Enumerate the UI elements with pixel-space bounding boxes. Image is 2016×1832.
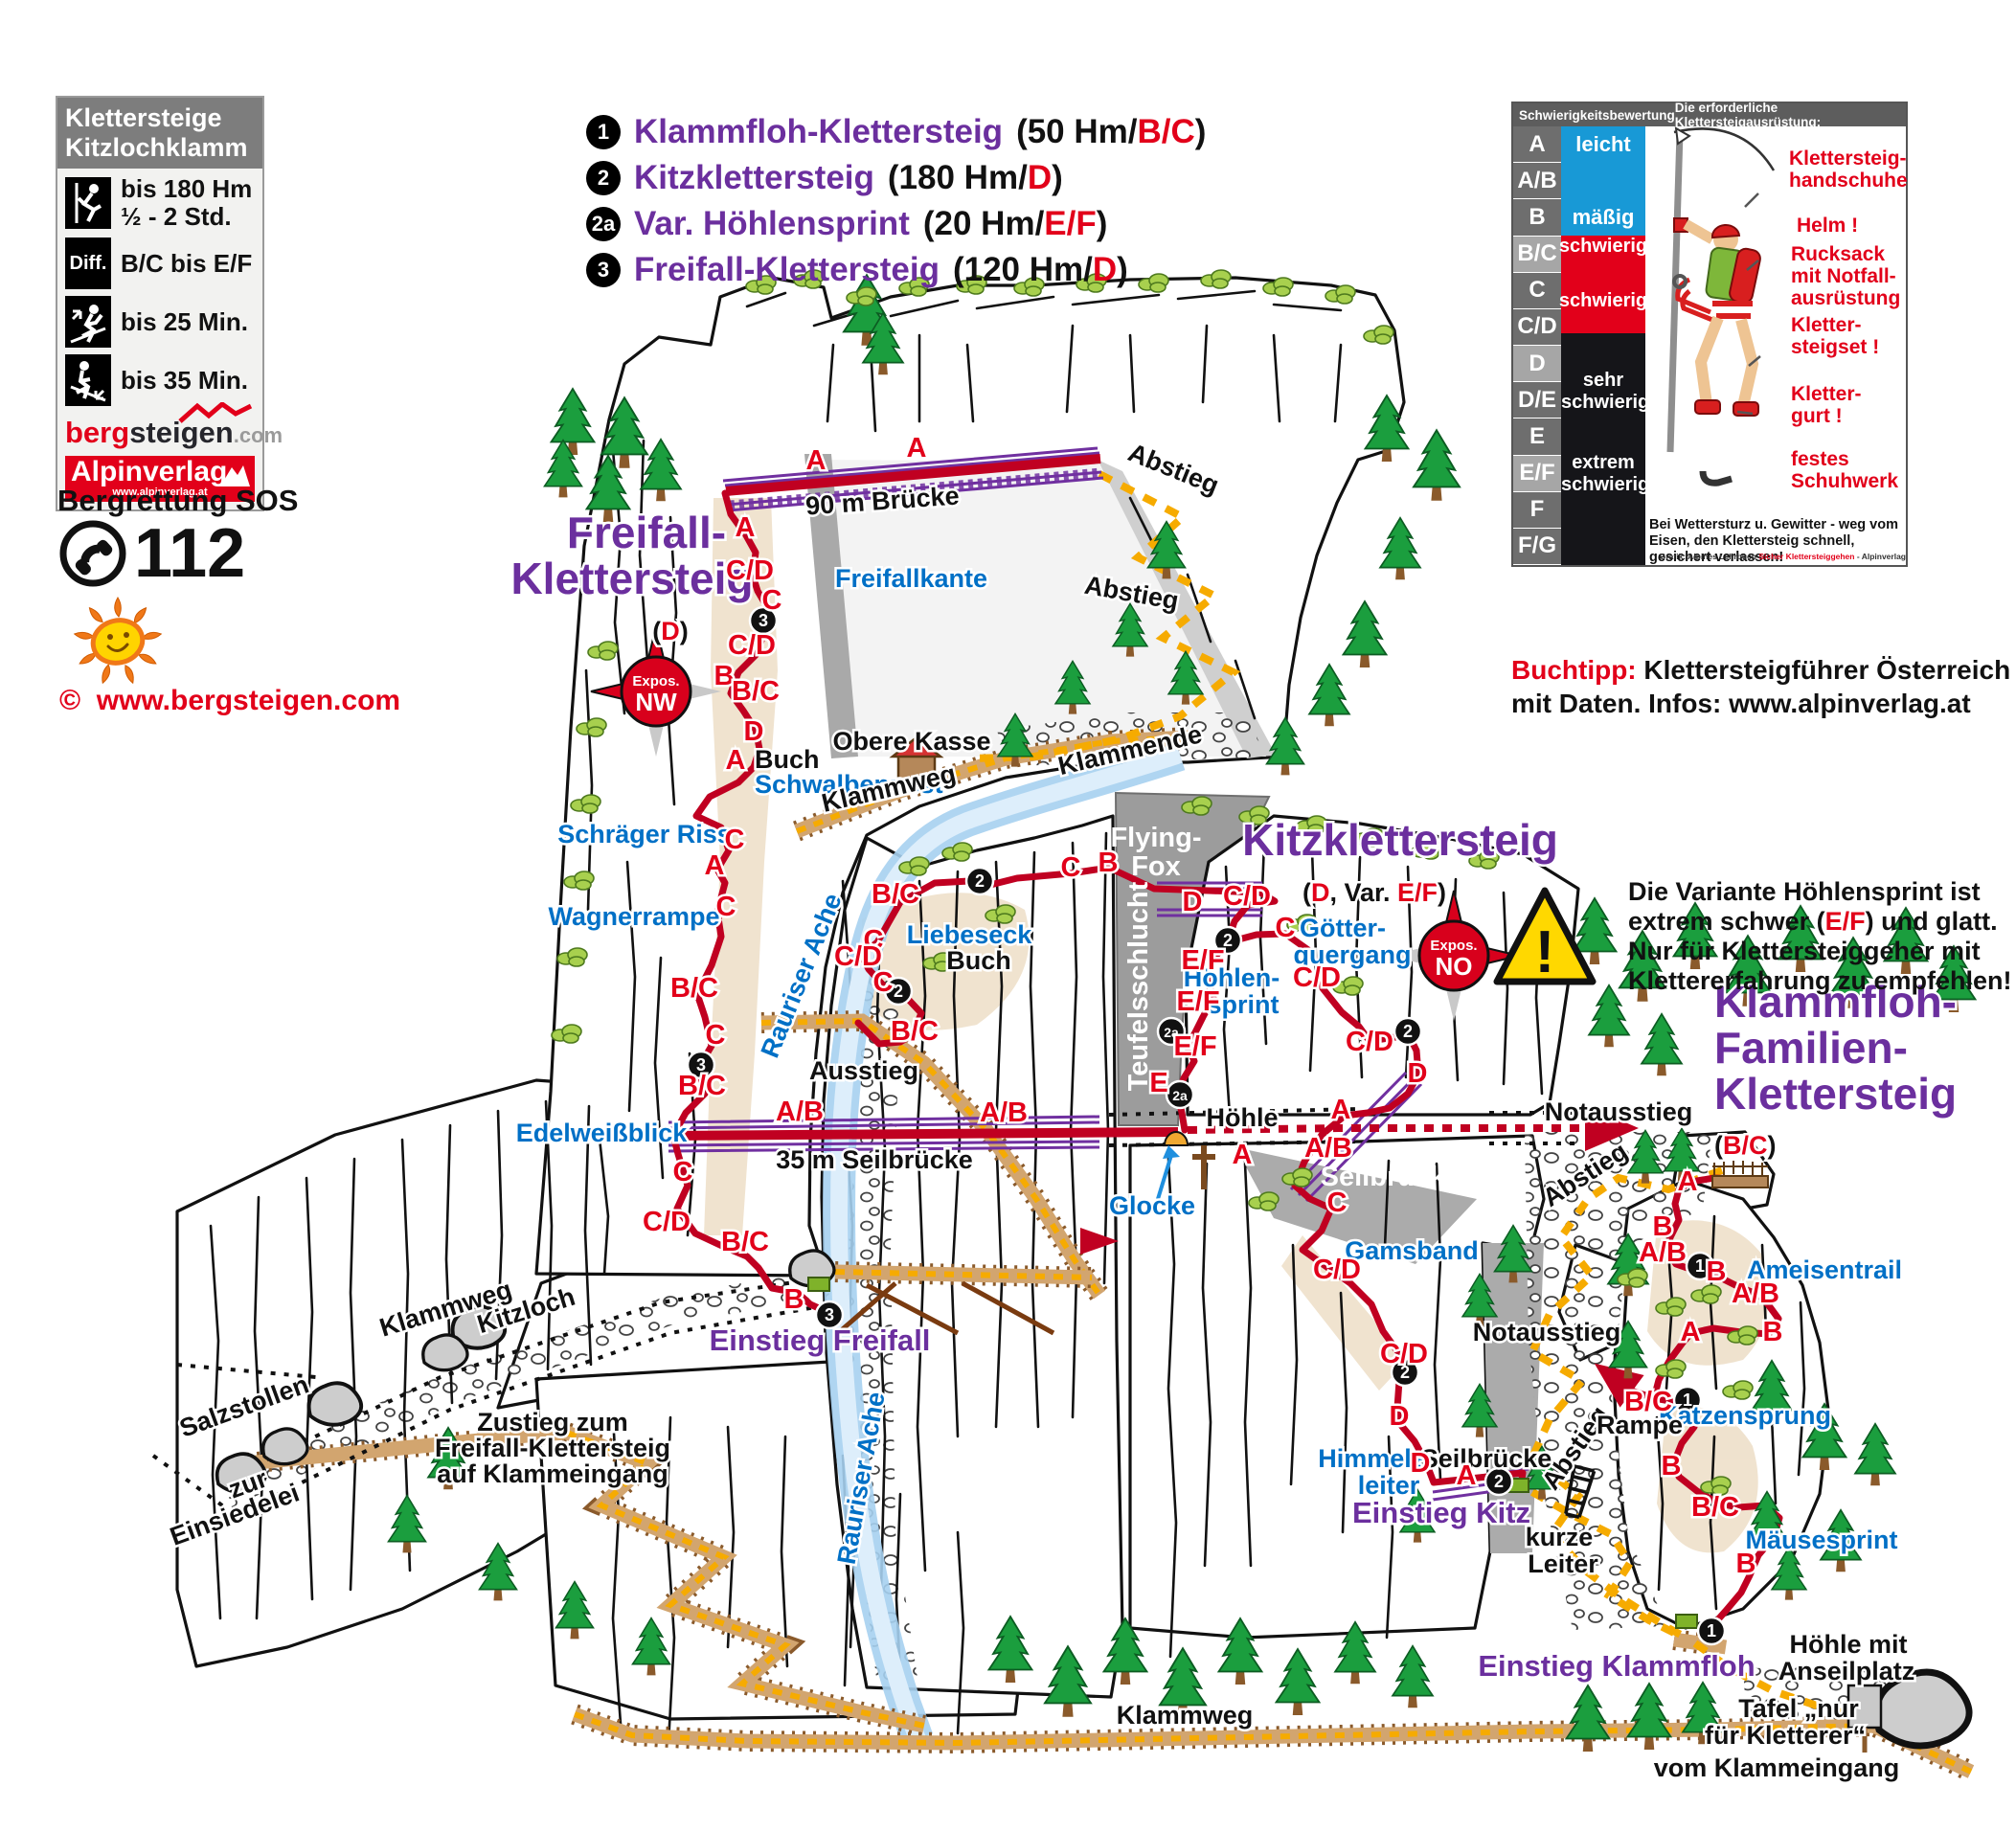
map-label: Teufelsschlucht [1123, 881, 1154, 1091]
map-label: (D) [652, 617, 689, 645]
sos-title: Bergrettung SOS [57, 484, 298, 518]
map-label: E/F [1181, 945, 1224, 976]
buchtipp-note: Buchtipp: Klettersteigführer Österreich … [1511, 653, 2010, 720]
map-label: Freifall-Klettersteig [435, 1434, 670, 1462]
svg-text:NW: NW [635, 688, 677, 716]
map-label: Einstieg Freifall [710, 1323, 931, 1357]
map-label: Wagnerrampe [548, 902, 719, 931]
map-label: A/B [1732, 1278, 1779, 1309]
map-label: C [1061, 852, 1081, 883]
map-label: D [1183, 887, 1203, 917]
legend-row-descent: bis 35 Min. [57, 348, 262, 406]
map-label: C [762, 585, 782, 616]
map-label: Freifall- [567, 508, 726, 557]
hike-up-icon [65, 296, 111, 348]
map-label: (D, Var. E/F) [1302, 878, 1446, 907]
map-label: A/B [980, 1097, 1028, 1128]
route-number-badge: 2 [586, 161, 621, 195]
map-label: A [726, 745, 746, 776]
map-label: A [736, 512, 756, 543]
map-label: Notausstieg [1473, 1318, 1621, 1346]
legend-panel: KlettersteigeKitzlochklamm bis 180 Hm½ -… [56, 96, 264, 511]
map-label: Mäusesprint [1745, 1526, 1897, 1554]
map-label: A [1233, 1140, 1253, 1170]
map-label: E/F [1176, 986, 1219, 1017]
map-label: B/C [1691, 1492, 1739, 1523]
map-label: Höhle [1206, 1103, 1278, 1132]
map-label: C [673, 1157, 693, 1187]
info-board [1676, 1615, 1697, 1628]
svg-text:2: 2 [894, 982, 903, 1001]
map-label: Leiter [1528, 1549, 1598, 1578]
map-label: B [784, 1284, 804, 1315]
map-label: Kitzklettersteig [1242, 815, 1558, 865]
map-label: auf Klammeingang [437, 1459, 668, 1488]
map-label: C/D [1293, 962, 1341, 993]
map-label: A [806, 445, 827, 476]
route-list-item: 2 Kitzklettersteig (180 Hm/D) [586, 159, 1206, 197]
graphic-credit: Grafik: Alpines Lehrbuch Sicher Kletters… [1649, 552, 1906, 561]
map-label: Liebeseck [907, 920, 1033, 949]
map-label: Schräger Riss [557, 820, 732, 848]
map-label: C [706, 1020, 726, 1051]
sos-block: Bergrettung SOS 112 [57, 484, 298, 589]
map-label: vom Klammeingang [1654, 1753, 1900, 1782]
map-label: C/D [726, 555, 774, 586]
map-label: Tafel „nur [1738, 1694, 1859, 1723]
map-label: C/D [1223, 881, 1271, 912]
map-label: B/C [732, 676, 780, 707]
route-number-badge: 1 [586, 115, 621, 149]
copyright-line: © www.bergsteigen.com [59, 685, 400, 717]
route-number-marker: 2a [1167, 1081, 1193, 1108]
map-label: für Kletterer“ [1705, 1721, 1866, 1750]
map-label: C/D [1346, 1027, 1393, 1057]
map-label: A [1681, 1317, 1701, 1347]
map-label: Fox [1131, 851, 1181, 882]
map-label: Glocke [1109, 1191, 1195, 1220]
equipment-label: Rucksack mit Notfall- ausrüstung [1791, 243, 1900, 309]
map-label: B/C [678, 1071, 726, 1101]
map-label: B [1763, 1317, 1783, 1347]
svg-text:1: 1 [1695, 1256, 1705, 1276]
svg-text:2: 2 [1494, 1472, 1504, 1491]
emergency-number: 112 [134, 520, 245, 587]
route-number-marker: 2 [1394, 1018, 1421, 1045]
equipment-area: Klettersteig- handschuhe Helm ! Rucksack… [1645, 126, 1910, 565]
route-list: 1 Klammfloh-Klettersteig (50 Hm/B/C) 2 K… [586, 113, 1206, 289]
map-label: A/B [776, 1097, 824, 1127]
map-label: B/C [721, 1227, 769, 1257]
map-label: (B/C) [1714, 1131, 1777, 1160]
map-label: C [873, 967, 894, 998]
route-list-item: 1 Klammfloh-Klettersteig (50 Hm/B/C) [586, 113, 1206, 151]
map-label: Anseilplatz [1778, 1657, 1915, 1685]
map-label: A [1331, 1095, 1351, 1125]
map-label: Klammweg [1117, 1701, 1254, 1730]
map-label: B [1099, 848, 1119, 878]
map-label: D [1390, 1401, 1410, 1432]
map-label: Seilbrücke [1421, 1444, 1552, 1473]
map-label: Klettersteig [510, 554, 753, 603]
route-number-badge: 2a [586, 207, 621, 241]
map-label: A [907, 433, 927, 464]
map-label: B [1662, 1451, 1682, 1481]
map-label: C [1276, 913, 1296, 943]
map-label: Buch [755, 745, 820, 774]
map-label: C/D [1313, 1255, 1361, 1285]
svg-text:1: 1 [1707, 1621, 1716, 1640]
map-label: kurze [1526, 1523, 1594, 1551]
map-label: D [1411, 1448, 1431, 1479]
map-label: E [1149, 1068, 1167, 1098]
route-list-item: 2a Var. Höhlensprint (20 Hm/E/F) [586, 205, 1206, 243]
map-label: B [1736, 1549, 1756, 1579]
map-label: Flying- [1110, 823, 1201, 853]
map-label: B/C [891, 1016, 939, 1047]
map-label: C [1327, 1187, 1348, 1218]
svg-text:3: 3 [825, 1305, 834, 1324]
climber-icon [65, 177, 111, 229]
climber-figure [1645, 126, 1789, 509]
equipment-label: Klettersteig- handschuhe [1789, 147, 1908, 192]
legend-row-difficulty: Diff. B/C bis E/F [57, 231, 262, 289]
map-label: B [1707, 1256, 1727, 1287]
map-label: A [705, 850, 725, 881]
map-label: B/C [670, 973, 718, 1004]
map-label: Freifallkante [835, 564, 987, 593]
map-label: A/B [1304, 1133, 1352, 1164]
map-label: C/D [643, 1207, 691, 1237]
map-label: D [744, 716, 764, 747]
difficulty-box: Diff. [65, 237, 111, 289]
map-label: Götter- [1300, 914, 1386, 942]
map-label: C [716, 892, 736, 922]
equipment-label: Helm ! [1797, 215, 1858, 237]
equipment-label: Kletter- steigset ! [1791, 314, 1879, 358]
map-label: A [1457, 1460, 1477, 1491]
map-label: Katzensprung [1659, 1401, 1831, 1430]
grade-column: A A/B B B/C C C/D D D/E E E/F F F/G [1513, 126, 1561, 565]
map-label: Klettersteig [1714, 1069, 1957, 1119]
map-label: Edelweißblick [516, 1119, 689, 1147]
map-label: D [1408, 1058, 1428, 1089]
map-label: B/C [872, 879, 919, 910]
map-label: Einstieg Klammfloh [1478, 1649, 1755, 1683]
map-label: Obere Kasse [832, 727, 990, 756]
route-list-item: 3 Freifall-Klettersteig (120 Hm/D) [586, 251, 1206, 289]
svg-text:NO: NO [1436, 952, 1473, 981]
hike-down-icon [65, 354, 111, 406]
route-number-badge: 3 [586, 253, 621, 287]
map-label: Höhle mit [1789, 1630, 1907, 1659]
map-label: Zustieg zum [477, 1408, 628, 1436]
map-label: Familien- [1714, 1023, 1908, 1073]
info-board [808, 1278, 829, 1291]
equipment-label: Kletter- gurt ! [1791, 383, 1862, 427]
svg-text:2a: 2a [1172, 1088, 1188, 1103]
map-label: C/D [1380, 1339, 1428, 1369]
legend-row-height: bis 180 Hm½ - 2 Std. [57, 169, 262, 231]
equipment-label: festes Schuhwerk [1791, 448, 1898, 492]
route-number-marker: 1 [1698, 1617, 1725, 1644]
variant-warning-text: Die Variante Höhlensprint ist extrem sch… [1628, 877, 2012, 996]
map-label: Buch [946, 946, 1011, 975]
map-label: Einstieg Kitz [1352, 1496, 1530, 1529]
map-label: E/F [1173, 1031, 1216, 1062]
map-label: 35 m Seilbrücke [776, 1145, 973, 1174]
legend-row-approach: bis 25 Min. [57, 289, 262, 348]
svg-text:!: ! [1535, 919, 1555, 985]
bergsteigen-logo: bergsteigen.com [65, 416, 255, 450]
legend-title: KlettersteigeKitzlochklamm [57, 98, 262, 169]
map-label: Ausstieg [809, 1056, 918, 1085]
map-label: Gamsband [1345, 1236, 1479, 1265]
map-label: A [1678, 1166, 1698, 1197]
map-label: Notausstieg [1545, 1097, 1693, 1126]
svg-text:2: 2 [975, 871, 985, 891]
map-label: A/B [1639, 1237, 1687, 1268]
topo-poster: Expos. NW Expos. NO ! 3332222a2a222111 F… [0, 0, 2016, 1832]
svg-text:2: 2 [1403, 1022, 1413, 1041]
phone-icon [57, 518, 128, 589]
panel-header: Schwierigkeitsbewertung Die erforderlich… [1513, 103, 1906, 126]
map-label: C [725, 825, 745, 855]
map-label: B/C [1624, 1387, 1672, 1417]
map-label: C/D [728, 630, 776, 661]
difficulty-equipment-panel: Schwierigkeitsbewertung Die erforderlich… [1511, 102, 1908, 567]
sun-icon [65, 594, 170, 694]
route-number-marker: 2 [966, 868, 993, 894]
level-column: leichtmäßig schwierig schwierig sehr sch… [1561, 126, 1645, 565]
